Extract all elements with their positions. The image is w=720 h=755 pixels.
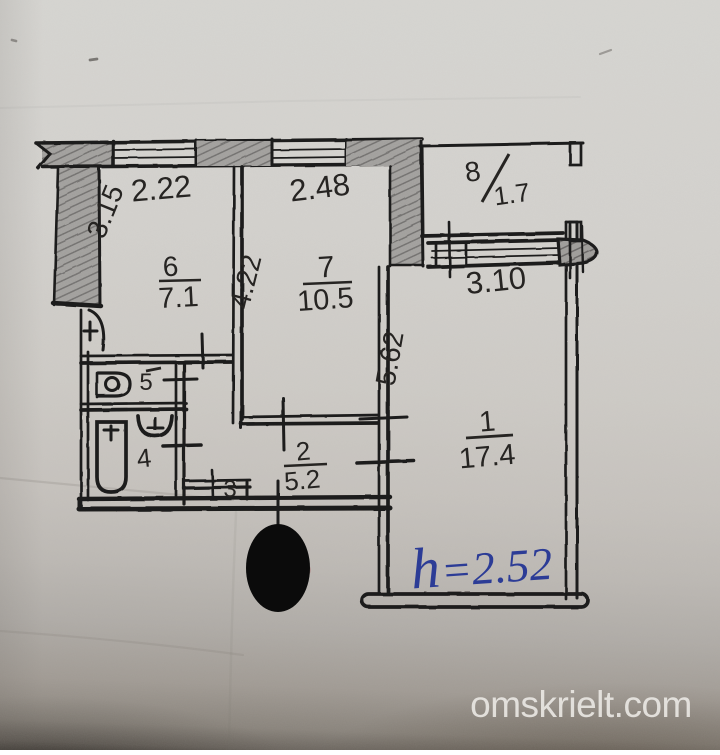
svg-text:7: 7 — [317, 250, 336, 284]
svg-text:2.48: 2.48 — [288, 167, 352, 209]
svg-text:5: 5 — [139, 369, 152, 396]
svg-text:6: 6 — [162, 251, 179, 283]
svg-text:7.1: 7.1 — [158, 281, 200, 315]
svg-text:2: 2 — [295, 435, 312, 466]
svg-text:1: 1 — [478, 405, 497, 438]
svg-text:3.10: 3.10 — [464, 260, 528, 301]
svg-text:10.5: 10.5 — [296, 282, 355, 318]
svg-text:3: 3 — [223, 476, 236, 503]
svg-text:1.7: 1.7 — [492, 177, 532, 212]
svg-text:5.2: 5.2 — [283, 464, 322, 497]
svg-text:2.22: 2.22 — [130, 168, 193, 208]
svg-text:17.4: 17.4 — [458, 439, 517, 476]
svg-text:omskrielt.com: omskrielt.com — [470, 684, 692, 725]
